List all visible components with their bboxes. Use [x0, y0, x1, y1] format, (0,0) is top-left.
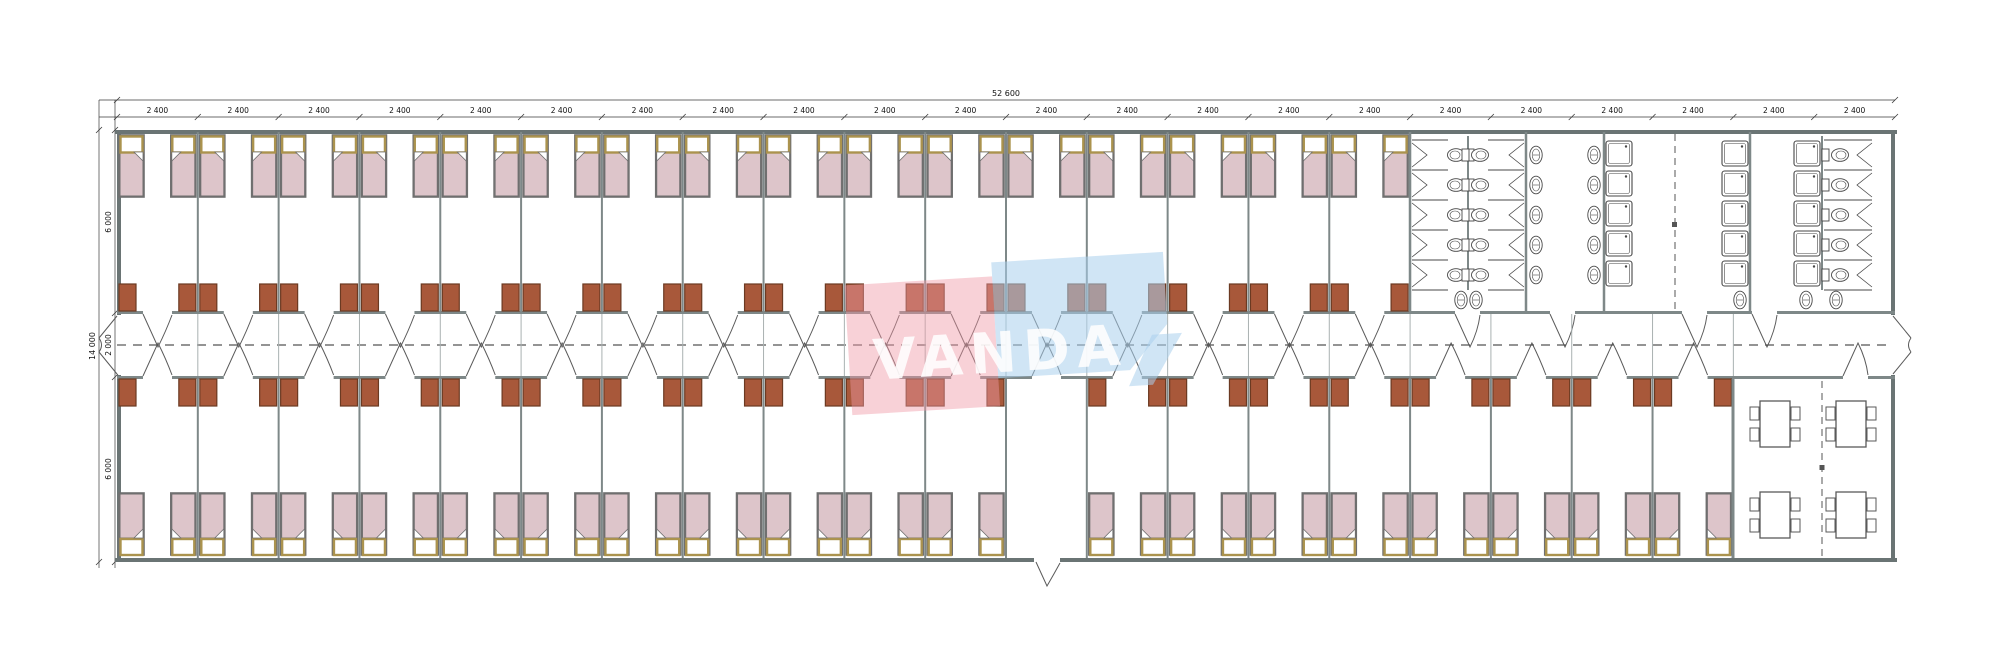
shower-tray	[1722, 171, 1748, 196]
dining-chair	[1826, 428, 1835, 441]
bed-mattress	[333, 494, 356, 538]
bed	[846, 493, 871, 555]
bed	[1383, 493, 1408, 555]
wc-tank	[1462, 179, 1469, 191]
bay-dimension-label: 2 400	[1440, 106, 1462, 115]
wash-basin	[1800, 291, 1812, 309]
bed-mattress	[1090, 494, 1113, 538]
wash-basin	[1734, 291, 1746, 309]
bed-mattress	[362, 152, 385, 196]
bay-dimension-label: 2 400	[1036, 106, 1058, 115]
overall-width-dimension: 14 000	[88, 332, 97, 360]
bed-mattress	[172, 494, 195, 538]
bay-dimension-label: 2 400	[1116, 106, 1138, 115]
bed-pillow	[334, 539, 356, 555]
bed-pillow	[929, 539, 951, 555]
dining-table	[1760, 401, 1790, 447]
bed-pillow	[1385, 539, 1407, 555]
room-door-swing	[305, 343, 334, 376]
bed	[119, 493, 144, 555]
bed-pillow	[1385, 137, 1407, 153]
shower-stall	[1722, 201, 1748, 226]
stall-door-swing	[1857, 203, 1872, 227]
shower-tray	[1606, 171, 1632, 196]
bed-pillow	[657, 539, 679, 555]
bed-pillow	[686, 137, 708, 153]
bed	[737, 135, 762, 197]
dining-chair	[1791, 498, 1800, 511]
stall-door-swing	[1412, 263, 1427, 287]
bed-mattress	[495, 494, 518, 538]
wash-basin	[1588, 176, 1600, 194]
stall-door-swing	[1857, 143, 1872, 167]
shower-stall	[1722, 141, 1748, 166]
room-door-swing	[1679, 343, 1708, 376]
dining-chair	[1750, 519, 1759, 532]
wardrobe	[179, 379, 196, 406]
bed-mattress	[928, 152, 951, 196]
bed	[1331, 493, 1356, 555]
stall-door-swing	[1857, 173, 1872, 197]
bed	[119, 135, 144, 197]
bed-pillow	[415, 137, 437, 153]
bed-mattress	[1384, 494, 1407, 538]
dashed-line-marker	[1672, 222, 1677, 227]
bay-dimension-label: 2 400	[632, 106, 654, 115]
bed	[171, 493, 196, 555]
wardrobe	[685, 379, 702, 406]
bed-mattress	[495, 152, 518, 196]
bed-mattress	[576, 494, 599, 538]
shower-tray	[1606, 261, 1632, 286]
bed-pillow	[1546, 539, 1568, 555]
toilet-wc	[1462, 179, 1489, 192]
bay-dimension-label: 2 400	[1763, 106, 1785, 115]
wash-basin	[1530, 146, 1542, 164]
bed-pillow	[334, 137, 356, 153]
room-door-swing	[1436, 343, 1465, 376]
bed	[846, 135, 871, 197]
dining-chair	[1750, 498, 1759, 511]
room-door-swing	[385, 314, 414, 347]
bed-mattress	[282, 494, 305, 538]
bed	[656, 493, 681, 555]
bed	[413, 135, 438, 197]
dashed-line-marker	[1820, 465, 1825, 470]
room-door-swing	[385, 343, 414, 376]
wardrobe	[281, 379, 298, 406]
bay-dimension-label: 2 400	[1682, 106, 1704, 115]
bed-mattress	[1465, 494, 1488, 538]
bed-pillow	[848, 539, 870, 555]
bed	[1141, 493, 1166, 555]
wash-basin	[1830, 291, 1842, 309]
bottom-rooms-depth-dimension: 6 000	[104, 458, 113, 480]
bed	[1089, 135, 1114, 197]
corridor-width-dimension: 2 000	[104, 334, 113, 356]
bed	[1545, 493, 1570, 555]
bed-mattress	[443, 494, 466, 538]
wardrobe	[200, 379, 217, 406]
bed	[1060, 135, 1085, 197]
wardrobe	[685, 284, 702, 311]
bed-mattress	[1303, 494, 1326, 538]
dining-table	[1760, 492, 1790, 538]
wash-basin	[1530, 266, 1542, 284]
dining-chair	[1867, 407, 1876, 420]
wardrobe	[523, 379, 540, 406]
wardrobe	[340, 284, 357, 311]
bed	[200, 135, 225, 197]
stall-door-swing	[1857, 233, 1872, 257]
wc-tank	[1462, 149, 1469, 161]
bed-pillow	[767, 539, 789, 555]
shower-drain	[1625, 235, 1627, 237]
bay-dimension-label: 2 400	[1844, 106, 1866, 115]
bed-mattress	[253, 494, 276, 538]
shower-drain	[1741, 265, 1743, 267]
wardrobe	[1089, 379, 1106, 406]
bed-pillow	[496, 137, 518, 153]
bed-mattress	[1142, 152, 1165, 196]
bed	[523, 135, 548, 197]
dining-table	[1836, 401, 1866, 447]
room-door-swing	[628, 343, 657, 376]
shower-tray	[1794, 141, 1820, 166]
wardrobe	[119, 284, 136, 311]
stall-door-swing	[1509, 173, 1524, 197]
bed	[979, 135, 1004, 197]
shower-drain	[1741, 205, 1743, 207]
bed-mattress	[1494, 494, 1517, 538]
toilet-wc	[1462, 149, 1489, 162]
bed-mattress	[1384, 152, 1407, 196]
bed-pillow	[253, 539, 275, 555]
shower-stall	[1606, 231, 1632, 256]
dining-table-group	[1826, 492, 1876, 538]
wardrobe	[1574, 379, 1591, 406]
bed	[1302, 135, 1327, 197]
bed-mattress	[928, 494, 951, 538]
wardrobe	[502, 379, 519, 406]
bed	[1655, 493, 1680, 555]
bed-pillow	[1304, 539, 1326, 555]
shower-tray	[1606, 141, 1632, 166]
bed-pillow	[201, 137, 223, 153]
bed	[817, 493, 842, 555]
wardrobe	[119, 379, 136, 406]
room-door-swing	[305, 314, 334, 347]
shower-drain	[1813, 205, 1815, 207]
bed-mattress	[1009, 152, 1032, 196]
bed-mattress	[1707, 494, 1730, 538]
room-door-swing	[1843, 343, 1868, 376]
bed-pillow	[525, 137, 547, 153]
bay-dimension-label: 2 400	[1359, 106, 1381, 115]
room-door-swing	[1194, 314, 1223, 347]
bed-mattress	[1303, 152, 1326, 196]
bed-mattress	[605, 152, 628, 196]
bed-mattress	[524, 152, 547, 196]
dining-chair	[1826, 498, 1835, 511]
bed	[898, 493, 923, 555]
bed-pillow	[576, 137, 598, 153]
room-door-swing	[1517, 343, 1546, 376]
dining-chair	[1750, 407, 1759, 420]
shower-drain	[1813, 235, 1815, 237]
bed-mattress	[980, 494, 1003, 538]
bed	[1008, 135, 1033, 197]
room-door-swing	[790, 314, 819, 347]
toilet-wc	[1822, 239, 1849, 252]
wc-tank	[1462, 239, 1469, 251]
wc-tank	[1822, 209, 1829, 221]
wardrobe	[1412, 379, 1429, 406]
bed	[604, 135, 629, 197]
bed	[1574, 493, 1599, 555]
bed-pillow	[1575, 539, 1597, 555]
bed-mattress	[1546, 494, 1569, 538]
wc-tank	[1822, 269, 1829, 281]
top-rooms-depth-dimension: 6 000	[104, 211, 113, 233]
shower-stall	[1722, 171, 1748, 196]
bed-mattress	[767, 152, 790, 196]
stall-door-swing	[1509, 263, 1524, 287]
bay-dimension-label: 2 400	[551, 106, 573, 115]
shower-stall	[1794, 231, 1820, 256]
bed-mattress	[605, 494, 628, 538]
bed-pillow	[525, 539, 547, 555]
bed	[1170, 135, 1195, 197]
bed-pillow	[738, 539, 760, 555]
wardrobe	[825, 379, 842, 406]
shower-stall	[1794, 261, 1820, 286]
bed	[1383, 135, 1408, 197]
bed-pillow	[172, 137, 194, 153]
bed	[494, 135, 519, 197]
wardrobe	[200, 284, 217, 311]
shower-stall	[1606, 261, 1632, 286]
room-door-swing	[1355, 314, 1384, 347]
bay-dimension-label: 2 400	[389, 106, 411, 115]
shower-drain	[1813, 265, 1815, 267]
room-door-swing	[1194, 343, 1223, 376]
stall-door-swing	[1509, 143, 1524, 167]
room-door-swing	[1682, 314, 1707, 347]
shower-stall	[1722, 261, 1748, 286]
wash-basin	[1588, 206, 1600, 224]
bed-pillow	[848, 137, 870, 153]
bed	[656, 135, 681, 197]
bed-pillow	[444, 137, 466, 153]
room-door-swing	[224, 314, 253, 347]
bed-mattress	[818, 494, 841, 538]
wash-basin	[1530, 236, 1542, 254]
bay-dimension-label: 2 400	[1521, 106, 1543, 115]
dining-chair	[1867, 428, 1876, 441]
bed	[1221, 493, 1246, 555]
wc-tank	[1822, 149, 1829, 161]
bed-mattress	[414, 152, 437, 196]
toilet-wc	[1462, 239, 1489, 252]
dining-chair	[1750, 428, 1759, 441]
stall-door-swing	[1509, 233, 1524, 257]
wardrobe	[1493, 379, 1510, 406]
dining-table	[1836, 492, 1866, 538]
wardrobe	[1229, 284, 1246, 311]
bed-mattress	[443, 152, 466, 196]
wardrobe	[583, 284, 600, 311]
bay-dimension-label: 2 400	[955, 106, 977, 115]
entrance-door	[1036, 562, 1060, 586]
shower-tray	[1722, 141, 1748, 166]
toilet-wc	[1448, 239, 1475, 252]
dining-chair	[1826, 519, 1835, 532]
wardrobe	[1310, 284, 1327, 311]
bed	[575, 135, 600, 197]
wash-basin	[1588, 236, 1600, 254]
bed-mattress	[767, 494, 790, 538]
bed-mattress	[1575, 494, 1598, 538]
bed-pillow	[1333, 539, 1355, 555]
bed-mattress	[1171, 152, 1194, 196]
stall-door-swing	[1857, 263, 1872, 287]
bed-mattress	[818, 152, 841, 196]
exit-door-right	[1893, 316, 1911, 374]
bed-pillow	[1223, 539, 1245, 555]
bed	[413, 493, 438, 555]
bed-mattress	[686, 152, 709, 196]
wardrobe	[179, 284, 196, 311]
toilet-wc	[1822, 149, 1849, 162]
bed-mattress	[120, 152, 143, 196]
bed-pillow	[981, 539, 1003, 555]
bed-pillow	[1061, 137, 1083, 153]
bay-dimension-label: 2 400	[1278, 106, 1300, 115]
wardrobe	[361, 379, 378, 406]
stall-door-swing	[1412, 143, 1427, 167]
shower-tray	[1794, 231, 1820, 256]
dining-table-group	[1750, 401, 1800, 447]
wardrobe	[1170, 284, 1187, 311]
bed	[1302, 493, 1327, 555]
wardrobe	[583, 379, 600, 406]
bed-mattress	[899, 152, 922, 196]
bed	[685, 493, 710, 555]
wardrobe	[1250, 379, 1267, 406]
wardrobe	[421, 379, 438, 406]
bed	[442, 493, 467, 555]
shower-drain	[1741, 175, 1743, 177]
wardrobe	[260, 379, 277, 406]
bed-pillow	[1223, 137, 1245, 153]
wash-basin	[1530, 176, 1542, 194]
wardrobe	[745, 379, 762, 406]
room-door-swing	[143, 314, 172, 347]
bed-pillow	[363, 539, 385, 555]
bed-pillow	[819, 137, 841, 153]
bed-mattress	[738, 152, 761, 196]
bay-dimension-label: 2 400	[147, 106, 169, 115]
shower-stall	[1606, 201, 1632, 226]
bed	[1170, 493, 1195, 555]
bed-pillow	[1090, 539, 1112, 555]
bed-mattress	[1656, 494, 1679, 538]
bed	[252, 135, 277, 197]
room-door-swing	[466, 343, 495, 376]
bed	[685, 135, 710, 197]
dining-chair	[1867, 519, 1876, 532]
bed-pillow	[363, 137, 385, 153]
bed-mattress	[172, 152, 195, 196]
bed	[1412, 493, 1437, 555]
wardrobe	[1331, 284, 1348, 311]
bed-mattress	[362, 494, 385, 538]
room-door-swing	[466, 314, 495, 347]
bed-mattress	[1222, 152, 1245, 196]
bed-mattress	[1251, 494, 1274, 538]
bed-mattress	[686, 494, 709, 538]
shower-drain	[1813, 145, 1815, 147]
bed-pillow	[1414, 539, 1436, 555]
bed-pillow	[282, 137, 304, 153]
bed-mattress	[282, 152, 305, 196]
room-door-swing	[1455, 314, 1480, 347]
bed-pillow	[1465, 539, 1487, 555]
wash-basin	[1470, 291, 1482, 309]
bed-pillow	[496, 539, 518, 555]
wardrobe	[1391, 379, 1408, 406]
bed-pillow	[253, 137, 275, 153]
bed-mattress	[899, 494, 922, 538]
overall-length-dimension: 52 600	[992, 89, 1020, 98]
bed	[332, 493, 357, 555]
bed	[281, 135, 306, 197]
bay-dimension-label: 2 400	[874, 106, 896, 115]
wardrobe	[260, 284, 277, 311]
wardrobe	[604, 284, 621, 311]
bed	[979, 493, 1004, 555]
toilet-wc	[1462, 269, 1489, 282]
wardrobe	[502, 284, 519, 311]
wc-tank	[1462, 209, 1469, 221]
dining-table-group	[1750, 492, 1800, 538]
room-door-swing	[790, 343, 819, 376]
wardrobe	[1229, 379, 1246, 406]
wc-tank	[1822, 179, 1829, 191]
bed-mattress	[253, 152, 276, 196]
room-door-swing	[709, 343, 738, 376]
wc-tank	[1462, 269, 1469, 281]
shower-tray	[1606, 231, 1632, 256]
wardrobe	[745, 284, 762, 311]
bed-mattress	[576, 152, 599, 196]
dining-chair	[1867, 498, 1876, 511]
bed	[1250, 493, 1275, 555]
bed-pillow	[1171, 539, 1193, 555]
bed	[1464, 493, 1489, 555]
bed-mattress	[1222, 494, 1245, 538]
wardrobe	[281, 284, 298, 311]
room-door-swing	[1355, 343, 1384, 376]
wardrobe	[1250, 284, 1267, 311]
wardrobe	[1310, 379, 1327, 406]
room-door-swing	[547, 314, 576, 347]
bed-mattress	[980, 152, 1003, 196]
bed	[927, 493, 952, 555]
bed-mattress	[1627, 494, 1650, 538]
dining-chair	[1791, 407, 1800, 420]
